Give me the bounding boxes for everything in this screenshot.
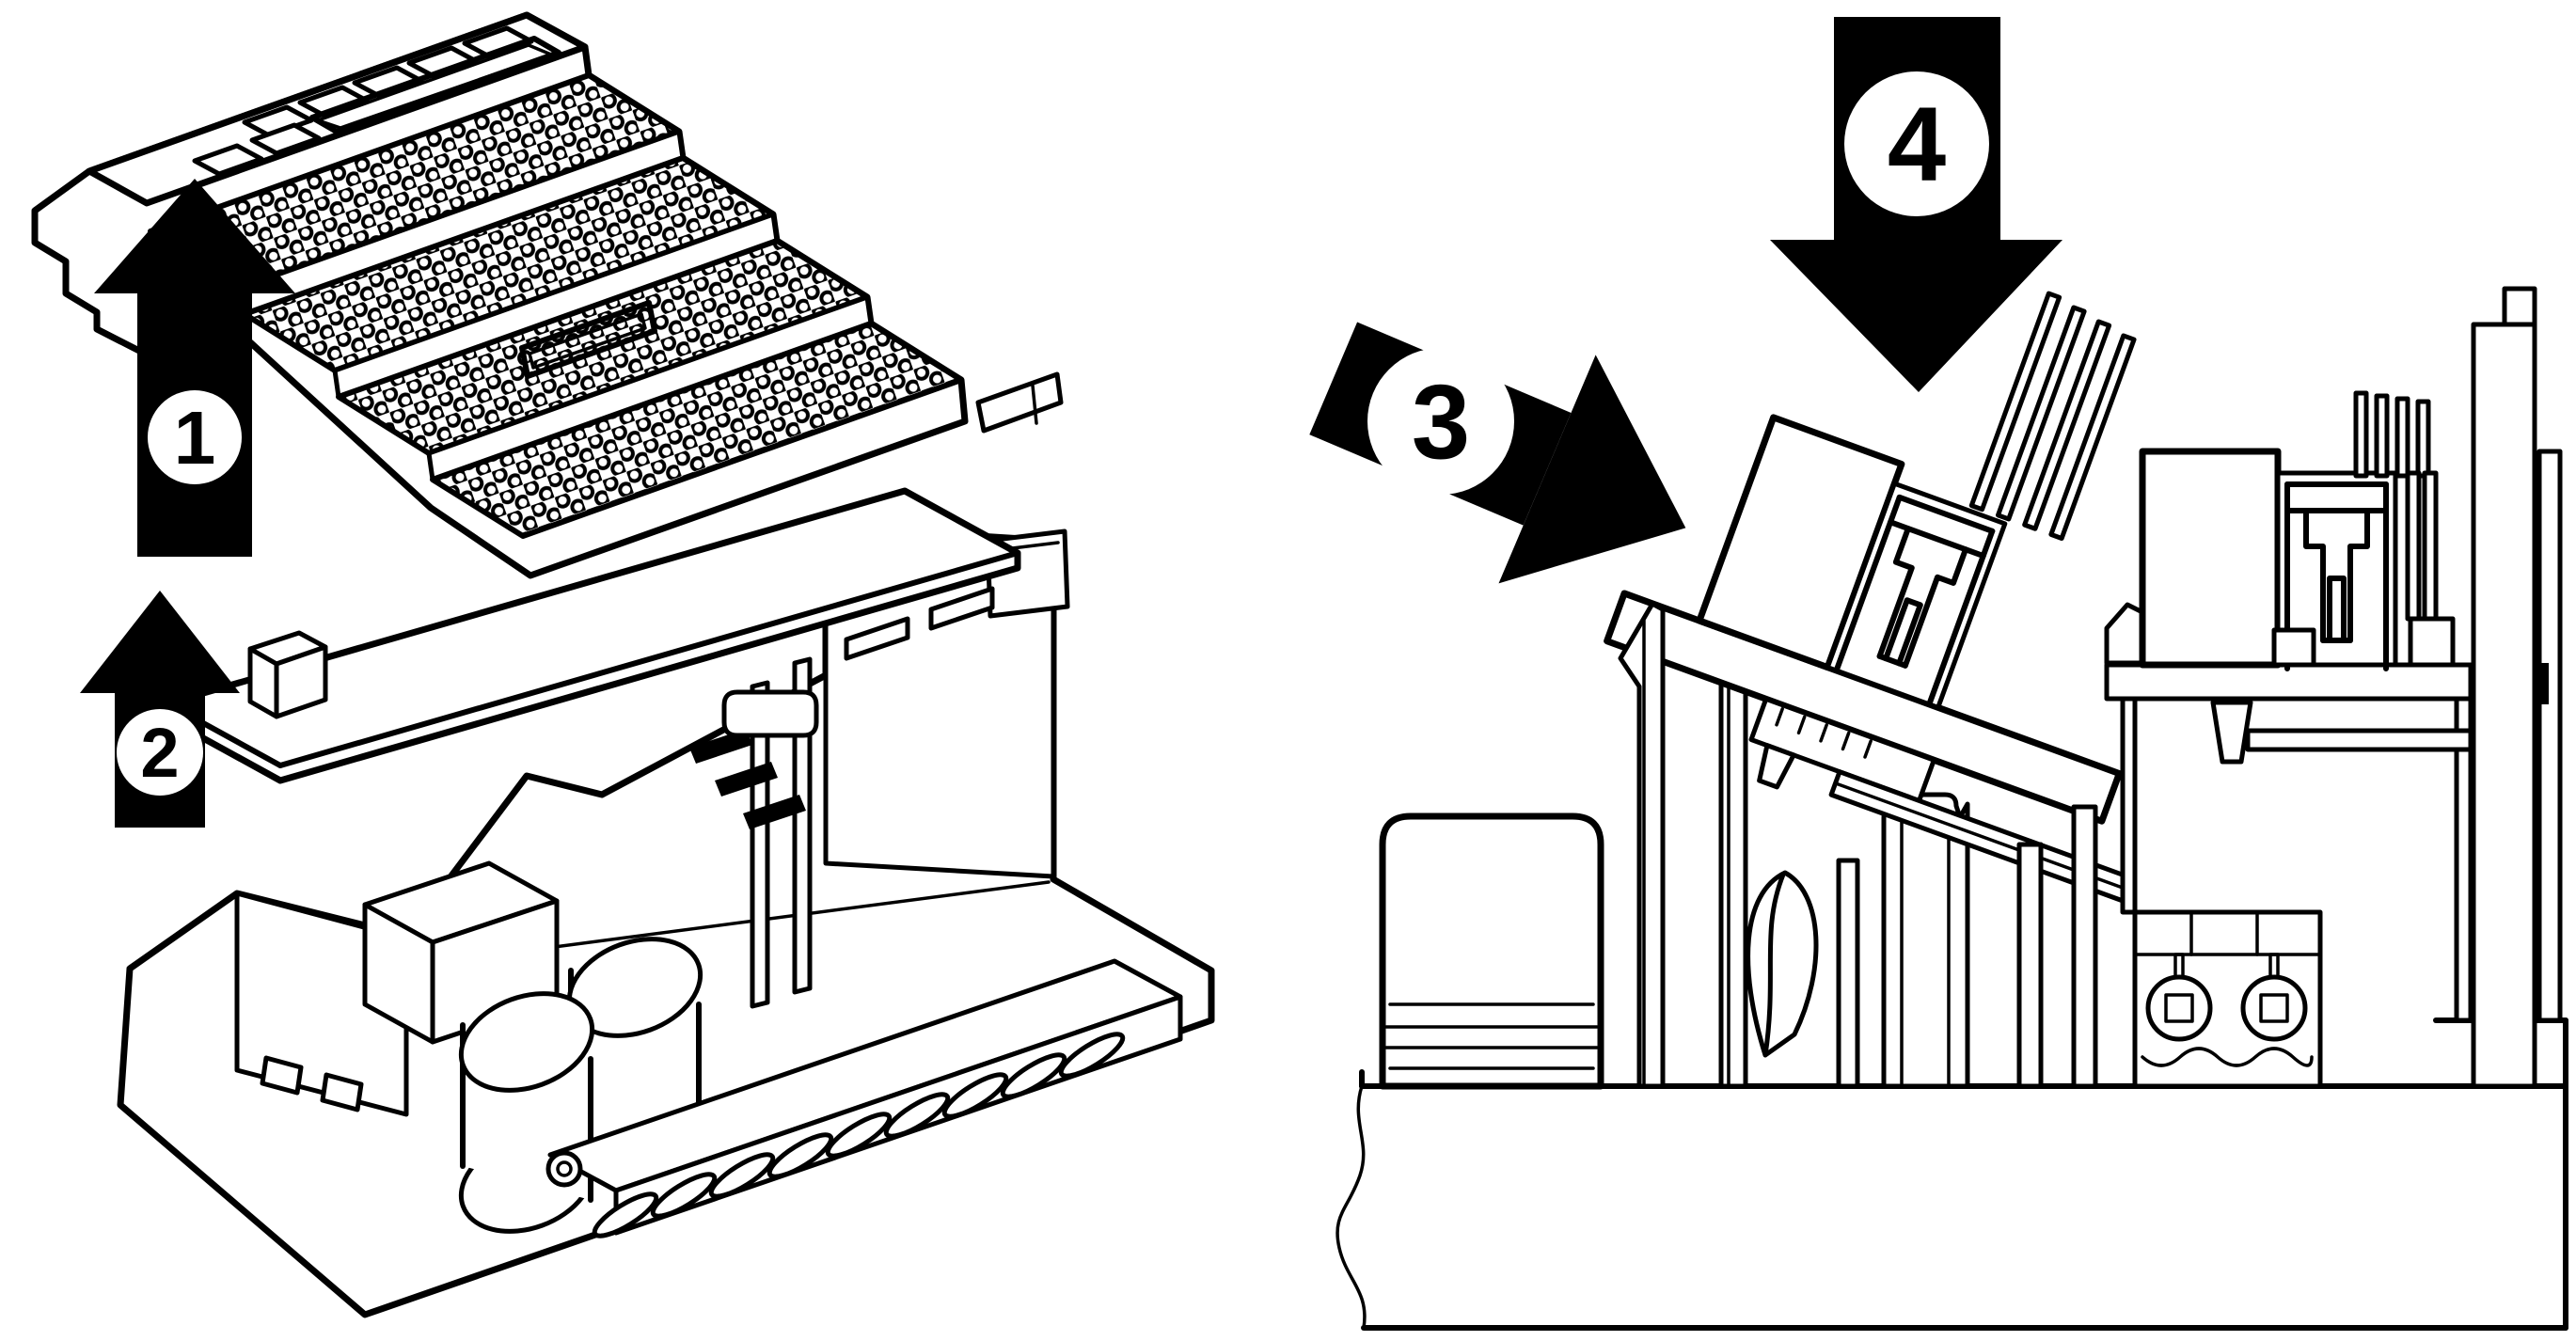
shelf-leg bbox=[2213, 702, 2251, 762]
step-1-number: 1 bbox=[174, 396, 216, 480]
guide-rail bbox=[1839, 860, 1857, 1086]
module-body bbox=[2142, 451, 2278, 665]
figure-exploded-device: 1 2 bbox=[35, 15, 1211, 1315]
step-2-number: 2 bbox=[140, 714, 179, 792]
step-4: 4 bbox=[1770, 17, 2062, 392]
step-3-number: 3 bbox=[1412, 363, 1470, 481]
terminal-screw bbox=[2243, 977, 2305, 1039]
instruction-diagram: 1 2 bbox=[0, 0, 2576, 1341]
wire-loop bbox=[1748, 873, 1816, 1055]
terminal-block bbox=[2135, 912, 2320, 1086]
right-wall bbox=[2473, 289, 2560, 1086]
support-leg bbox=[2019, 844, 2041, 1086]
strip-screw bbox=[548, 1153, 580, 1185]
cover-end-clip bbox=[978, 374, 1061, 431]
terminal-screw bbox=[2148, 977, 2210, 1039]
exploded-view-diagram: 1 2 bbox=[0, 0, 2576, 1341]
guide-post-left bbox=[1620, 604, 1663, 1086]
break-line bbox=[1337, 1086, 1365, 1328]
figure-module-insertion: 3 4 bbox=[1285, 17, 2566, 1328]
step-4-number: 4 bbox=[1888, 86, 1946, 203]
electrolytic-capacitor bbox=[1383, 816, 1601, 1086]
step-3: 3 bbox=[1285, 264, 1734, 642]
module-pins bbox=[1971, 293, 2139, 538]
lower-shelf bbox=[2248, 731, 2471, 749]
step-3-arrow-right-icon bbox=[1285, 264, 1734, 642]
board-relay bbox=[250, 633, 325, 717]
carrier-leg bbox=[2123, 699, 2135, 912]
angled-support bbox=[2107, 605, 2144, 663]
module-pins bbox=[2356, 393, 2428, 476]
support-leg bbox=[2074, 807, 2095, 1086]
board-clip bbox=[724, 692, 816, 735]
